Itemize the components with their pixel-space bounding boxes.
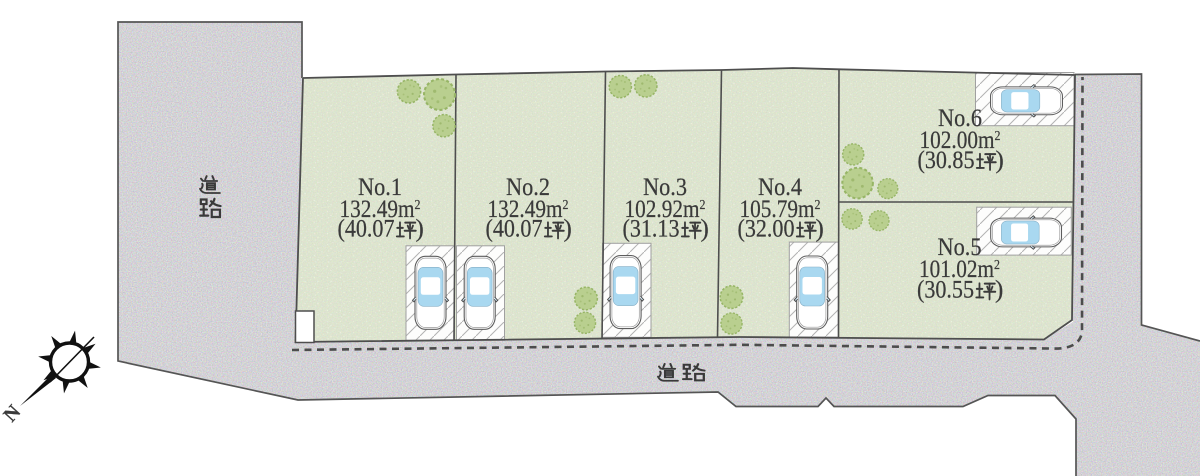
- svg-text:): ): [564, 216, 572, 243]
- svg-text:): ): [996, 147, 1004, 174]
- svg-text:): ): [816, 216, 824, 243]
- svg-text:(30.85: (30.85: [918, 147, 975, 174]
- svg-text:): ): [701, 216, 709, 243]
- svg-text:(31.13: (31.13: [623, 216, 680, 243]
- svg-text:(32.00: (32.00: [738, 216, 795, 243]
- svg-text:(30.55: (30.55: [917, 277, 974, 304]
- svg-text:(40.07: (40.07: [338, 216, 395, 243]
- svg-text:): ): [416, 216, 424, 243]
- svg-text:(40.07: (40.07: [486, 216, 543, 243]
- svg-text:): ): [995, 277, 1003, 304]
